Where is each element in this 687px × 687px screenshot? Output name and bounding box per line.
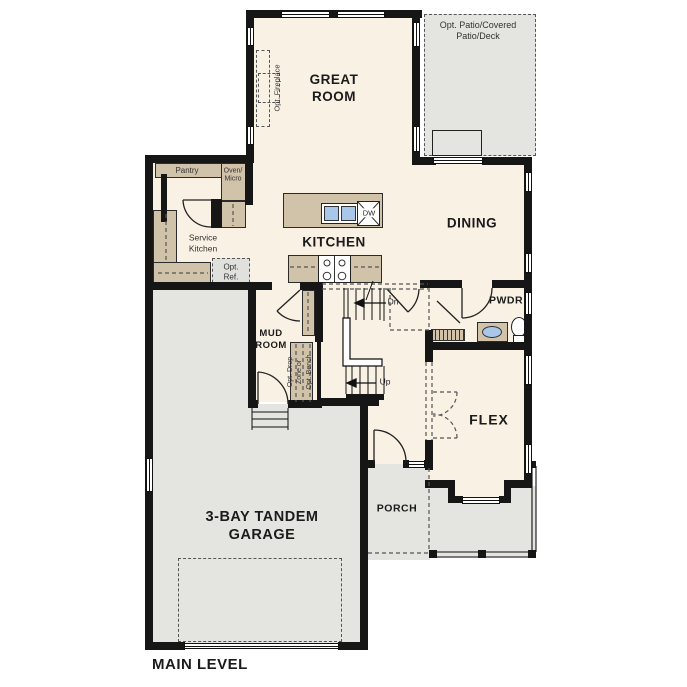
garage-door-dashed-outline xyxy=(178,558,342,642)
wall xyxy=(315,282,323,342)
window xyxy=(525,355,532,385)
garage-label: 3-BAY TANDEM GARAGE xyxy=(206,508,319,544)
window xyxy=(525,444,532,474)
window xyxy=(525,253,532,273)
window xyxy=(525,172,532,192)
range-cooktop xyxy=(318,255,351,283)
window xyxy=(281,11,330,18)
window xyxy=(247,27,254,46)
wall xyxy=(425,330,433,362)
window xyxy=(413,22,420,47)
sink-basin-left xyxy=(324,206,339,221)
service-kitchen-label: Service Kitchen xyxy=(189,232,217,253)
wall xyxy=(420,280,462,288)
patio-sliding-door xyxy=(433,157,483,164)
wall xyxy=(161,174,167,222)
pantry-label: Pantry xyxy=(175,166,198,176)
window xyxy=(413,126,420,152)
flex-label: FLEX xyxy=(469,411,509,429)
opt-ref-label: Opt. Ref. xyxy=(223,262,238,281)
pwdr-flex-floor xyxy=(428,286,526,484)
deck-post xyxy=(478,550,486,558)
dining-label: DINING xyxy=(447,216,497,233)
deck-post xyxy=(528,550,536,558)
wall xyxy=(425,480,449,488)
pwdr-sink xyxy=(482,326,502,338)
dishwasher-label: DW xyxy=(363,208,376,217)
window xyxy=(337,11,385,18)
wall xyxy=(145,282,258,290)
floor-plan: GREAT ROOM Opt. Patio/Covered Patio/Deck… xyxy=(0,0,687,687)
opt-fireplace-label: Opt. Fireplace xyxy=(272,64,281,111)
mudroom-closet xyxy=(302,290,315,336)
wall xyxy=(256,282,272,290)
wall xyxy=(424,460,433,468)
wall xyxy=(245,163,253,205)
stairs-down-label: Dn xyxy=(388,297,399,308)
pwdr-label: PWDR xyxy=(489,294,523,307)
patio-label: Opt. Patio/Covered Patio/Deck xyxy=(440,20,517,43)
window xyxy=(408,461,425,468)
wall xyxy=(338,642,368,650)
patio-step xyxy=(432,130,482,156)
wall xyxy=(145,642,185,650)
wall xyxy=(246,10,422,18)
main-level-title: MAIN LEVEL xyxy=(152,656,248,673)
wall xyxy=(511,480,532,488)
foyer-floor xyxy=(364,402,428,464)
wall xyxy=(425,342,532,350)
porch-label: PORCH xyxy=(377,502,417,515)
oven-micro-label: Oven/ Micro xyxy=(224,168,243,185)
bay-window xyxy=(462,497,500,504)
wall xyxy=(499,496,511,503)
kitchen-label: KITCHEN xyxy=(302,235,366,252)
wall xyxy=(448,496,463,503)
mud-room-label: MUD ROOM xyxy=(255,328,287,352)
stairs-up-label: Up xyxy=(380,377,391,388)
wall xyxy=(360,406,368,650)
great-room-label: GREAT ROOM xyxy=(310,72,359,106)
wall xyxy=(492,280,532,288)
window xyxy=(247,126,254,145)
drop-zone-label: Opt. Drop Zone or Opt. Bench xyxy=(286,354,314,389)
window xyxy=(525,292,532,315)
deck-post xyxy=(429,550,437,558)
tall-cabinet xyxy=(221,201,246,228)
wall xyxy=(145,163,153,650)
wall xyxy=(248,400,258,408)
sink-basin-right xyxy=(341,206,356,221)
wall xyxy=(145,155,254,163)
wall xyxy=(317,342,321,404)
window xyxy=(146,458,153,492)
pwdr-coat-rack xyxy=(431,329,465,341)
wall xyxy=(360,460,375,468)
wall xyxy=(211,199,222,228)
garage-door xyxy=(184,643,339,649)
wall xyxy=(346,394,384,400)
